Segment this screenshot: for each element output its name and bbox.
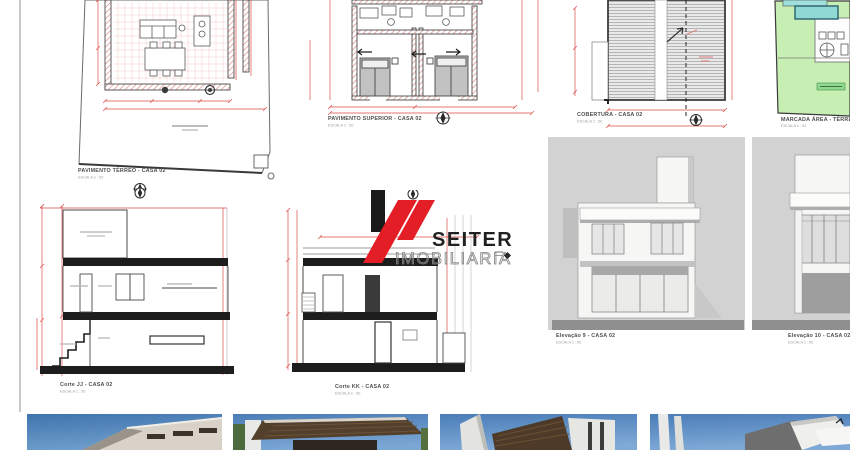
roof-ridge xyxy=(655,0,667,100)
render-photo-2[interactable] xyxy=(233,414,428,450)
ground-floor-glazing xyxy=(592,267,688,312)
render-photo-3[interactable] xyxy=(440,414,637,450)
panel-scale: ESCALA 1 : 50 xyxy=(781,124,806,128)
logo-diamond-icon xyxy=(504,252,511,259)
parapet-band xyxy=(790,193,850,207)
panel-label: PAVIMENTO SUPERIOR - CASA 02 xyxy=(328,116,422,122)
stairs xyxy=(52,320,90,366)
floor-plan-superior: PAVIMENTO SUPERIOR - CASA 02 ESCALA 1 : … xyxy=(300,0,550,130)
north-compass-icon xyxy=(436,112,451,124)
upper-floor xyxy=(63,266,228,312)
window-band xyxy=(800,215,850,263)
section-corte-jj: Corte JJ - CASA 02 ESCALA 1 : 50 xyxy=(32,188,272,403)
house-footprint xyxy=(815,18,850,62)
roof-slab xyxy=(63,258,228,266)
north-compass-icon xyxy=(408,190,418,199)
panel-scale: ESCALA 1 : 50 xyxy=(328,124,353,128)
roof-step xyxy=(592,42,608,100)
tower-volume xyxy=(657,157,693,203)
ground-strip xyxy=(552,320,744,330)
architectural-plan-sheet: PAVIMENTO TÉRREO - CASA 02 ESCALA 1 : 50 xyxy=(0,0,850,450)
pool xyxy=(795,6,838,19)
elevation-10: Elevação 10 - CASA 02 ESCALA 1 : 50 xyxy=(750,137,850,349)
floor-slab xyxy=(303,312,437,320)
upper-floor xyxy=(302,266,437,312)
elevation-9: Elevação 9 - CASA 02 ESCALA 1 : 50 xyxy=(548,137,748,349)
annotation-text-blur xyxy=(60,338,110,344)
panel-scale: ESCALA 1 : 50 xyxy=(556,341,581,345)
panel-label: PAVIMENTO TÉRREO - CASA 02 xyxy=(78,166,166,174)
north-compass-icon xyxy=(689,115,703,126)
ground-slab xyxy=(292,363,465,372)
panel-scale: ESCALA 1 : 50 xyxy=(335,392,360,396)
panel-label: Elevação 10 - CASA 02 xyxy=(788,333,850,339)
panel-scale: ESCALA 1 : 50 xyxy=(78,176,103,180)
pool-deck xyxy=(783,0,827,6)
floor-slab xyxy=(63,312,230,320)
panel-label: MARCADA ÁREA - TÉRREO xyxy=(781,115,850,123)
ground-strip xyxy=(752,320,850,330)
garden-wall xyxy=(443,333,465,363)
floor-plan-terreo: PAVIMENTO TÉRREO - CASA 02 ESCALA 1 : 50 xyxy=(22,0,300,200)
water-tank-room xyxy=(63,210,127,258)
section-corte-kk: Corte KK - CASA 02 ESCALA 1 : 50 xyxy=(285,190,490,405)
panel-label: COBERTURA - CASA 02 xyxy=(577,112,642,118)
panel-label: Elevação 9 - CASA 02 xyxy=(556,333,615,339)
render-photo-1[interactable] xyxy=(27,414,222,450)
lower-wall xyxy=(802,273,850,313)
ground-slab xyxy=(40,366,234,374)
panel-label: Corte JJ - CASA 02 xyxy=(60,382,113,388)
panel-scale: ESCALA 1 : 50 xyxy=(788,341,813,345)
panel-scale: ESCALA 1 : 50 xyxy=(577,120,602,124)
roof-slab xyxy=(303,258,438,266)
corner-pillar xyxy=(795,210,802,313)
render-photo-4[interactable] xyxy=(650,414,850,450)
page-left-divider xyxy=(19,0,21,412)
panel-scale: ESCALA 1 : 50 xyxy=(60,390,85,394)
door xyxy=(365,275,380,312)
north-compass-icon xyxy=(135,188,145,198)
roof-plan-cobertura: COBERTURA - CASA 02 ESCALA 1 : 50 xyxy=(555,0,765,140)
counter xyxy=(150,336,204,344)
bath-fixtures xyxy=(360,6,464,25)
parapet-band xyxy=(580,208,700,220)
ground-floor xyxy=(303,320,465,363)
site-plan-implantacao: MARCADA ÁREA - TÉRREO ESCALA 1 : 50 xyxy=(765,0,850,130)
side-pilaster xyxy=(563,208,578,258)
panel-label: Corte KK - CASA 02 xyxy=(335,384,389,390)
door xyxy=(375,322,391,363)
annotation-text-blur xyxy=(70,284,192,286)
column xyxy=(162,87,168,93)
slab-shadow-band xyxy=(580,261,695,267)
